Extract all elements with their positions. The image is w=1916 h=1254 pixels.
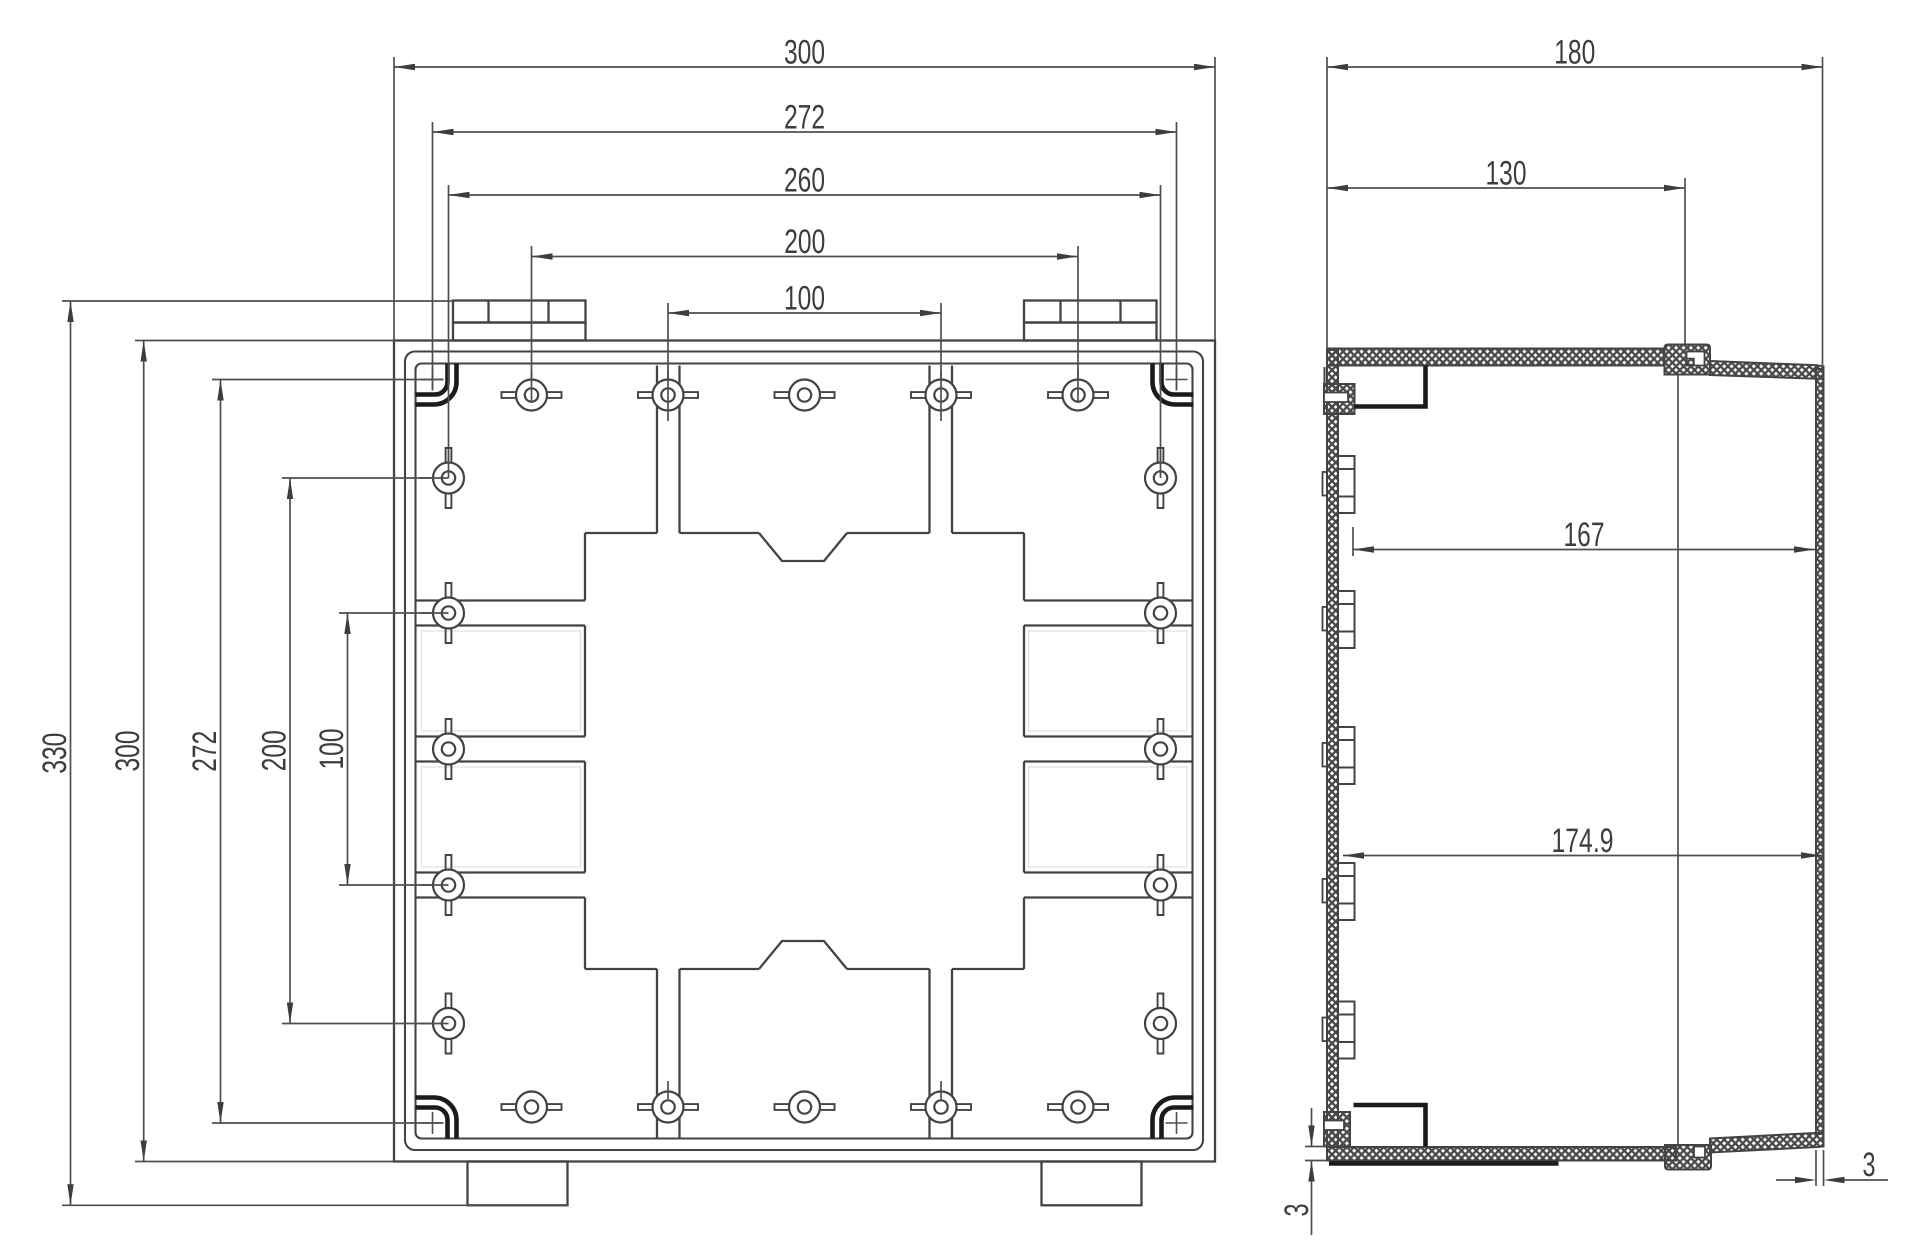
- svg-text:100: 100: [313, 729, 351, 770]
- svg-text:167: 167: [1564, 516, 1605, 554]
- svg-text:3: 3: [1863, 1146, 1876, 1184]
- svg-text:174.9: 174.9: [1552, 822, 1614, 860]
- svg-text:130: 130: [1486, 155, 1527, 193]
- svg-text:260: 260: [784, 162, 825, 200]
- svg-text:100: 100: [784, 280, 825, 318]
- svg-text:3: 3: [1278, 1204, 1316, 1217]
- svg-text:300: 300: [784, 34, 825, 72]
- svg-text:272: 272: [784, 99, 825, 137]
- svg-text:200: 200: [784, 223, 825, 261]
- svg-text:330: 330: [36, 733, 74, 774]
- svg-text:180: 180: [1554, 34, 1595, 72]
- svg-text:272: 272: [186, 731, 224, 772]
- svg-text:200: 200: [256, 730, 294, 771]
- svg-text:300: 300: [109, 731, 147, 772]
